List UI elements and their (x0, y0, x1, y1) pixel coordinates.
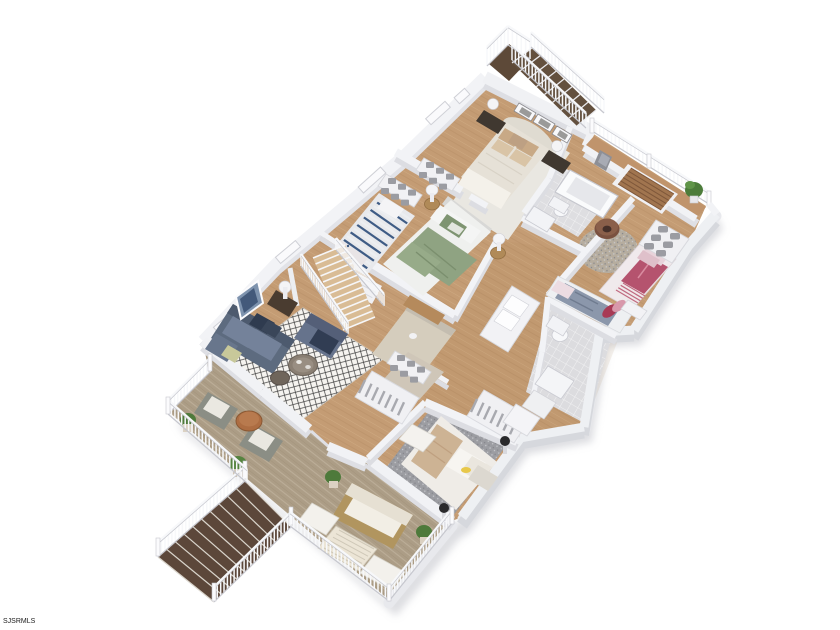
svg-text:SJSRMLS: SJSRMLS (3, 618, 36, 625)
